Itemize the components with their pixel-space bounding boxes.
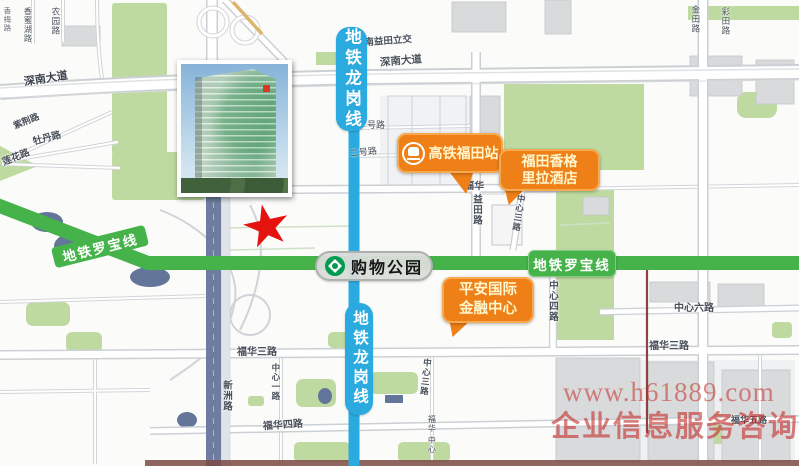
longgang-line-name: 地铁龙岗线 xyxy=(348,310,370,408)
poi-label: 福田香格里拉酒店 xyxy=(522,153,578,188)
road-label-xiangmihu-road: 香蜜湖路 xyxy=(23,7,31,43)
poi-label: 高铁福田站 xyxy=(429,143,499,163)
road-label-zhongxin-partial: 中心 xyxy=(427,436,435,454)
watermark-text: 企业信息服务咨询 xyxy=(551,403,799,445)
longgang-line-label-south: 地铁龙岗线 xyxy=(345,303,373,415)
road-label-no1-road: 号路 xyxy=(367,121,385,130)
poi-pingan-finance-center[interactable]: 平安国际金融中心 xyxy=(442,277,534,323)
shenzhen-metro-logo-icon xyxy=(325,256,345,276)
luobao-line-name: 地铁罗宝线 xyxy=(533,254,611,274)
longgang-line-label-north: 地铁龙岗线 xyxy=(336,27,367,131)
poi-label: 平安国际金融中心 xyxy=(459,281,517,319)
road-label-xinzhou-road: 新洲路 xyxy=(221,380,231,412)
road-label-caitian-road: 彩田路 xyxy=(721,7,730,36)
longgang-line-name: 地铁龙岗线 xyxy=(340,28,364,131)
road-label-fuhua-3rd-east: 福华三路 xyxy=(649,342,689,353)
building-logo xyxy=(263,85,270,92)
poi-shangrila-hotel[interactable]: 福田香格里拉酒店 xyxy=(499,149,600,191)
luobao-line-label-east[interactable]: 地铁罗宝线 xyxy=(528,250,616,277)
building-side xyxy=(195,77,202,182)
road-label-fuhua-3rd-west: 福华三路 xyxy=(237,348,277,359)
station-name: 购物公园 xyxy=(351,254,423,278)
road-label-xiangmei-road: 香梅路 xyxy=(3,7,11,33)
poi-futian-hsr-station[interactable]: 高铁福田站 xyxy=(397,133,503,173)
road-label-nongyuan-road: 农园路 xyxy=(51,7,60,36)
road-label-fuhua-partial: 福华 xyxy=(427,415,435,433)
building-trees xyxy=(181,178,288,193)
road-label-zhongxin-1st: 中心一路 xyxy=(271,363,280,401)
road-label-jintian-road: 金田路 xyxy=(691,5,700,34)
building-photo xyxy=(177,60,292,197)
train-icon xyxy=(402,142,425,165)
road-label-zhongxin-6th: 中心六路 xyxy=(674,304,714,315)
road-label-zhongxin-4th: 中心四路 xyxy=(547,280,557,322)
station-shopping-park[interactable]: 购物公园 xyxy=(315,251,433,281)
road-label-yitian-road: 益田路 xyxy=(471,194,481,226)
map-canvas[interactable]: 深南大道 深南益田立交 深南大道 号路 二号路 福华 益田路 中心三路 中心四路… xyxy=(0,0,799,466)
